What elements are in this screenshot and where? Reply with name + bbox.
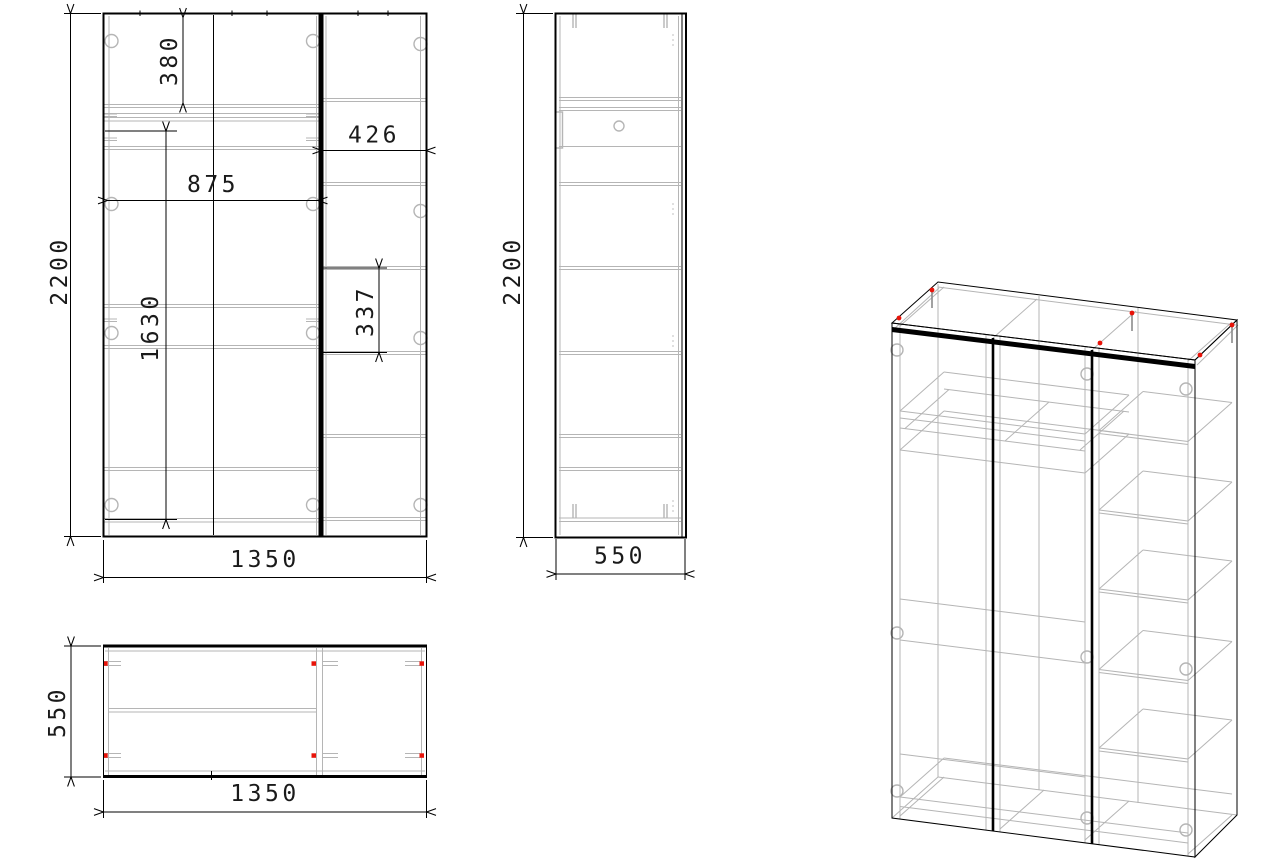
plan-carcass — [103, 645, 427, 780]
side-rail-hole — [614, 121, 624, 131]
dim-front-shelf-spacing: 337 — [324, 268, 388, 353]
front-carcass — [104, 11, 428, 538]
plan-connectors — [103, 661, 424, 758]
fitting-brackets — [105, 114, 319, 322]
connector-mark — [312, 753, 317, 758]
dim-label-front-top-compartment: 380 — [157, 34, 183, 86]
dim-label-front-left-width: 875 — [187, 172, 239, 198]
dim-front-right-width: 426 — [322, 123, 426, 151]
connector-mark — [420, 753, 425, 758]
iso-internal-gray — [891, 284, 1238, 856]
dim-front-overall-width: 1350 — [104, 540, 427, 583]
connector-mark — [312, 661, 317, 666]
side-outline — [556, 14, 687, 538]
connector-mark — [1098, 341, 1103, 346]
connector-mark — [897, 316, 902, 321]
dim-side-height: 2200 — [500, 14, 553, 538]
dim-label-front-right-width: 426 — [348, 123, 400, 149]
dim-label-front-hanging-height: 1630 — [138, 292, 164, 361]
dim-front-overall-height: 2200 — [47, 14, 101, 537]
dim-label-plan-depth: 550 — [45, 686, 71, 738]
technical-drawing-canvas: 2200 380 875 1630 426 337 — [0, 0, 1273, 862]
iso-right-shelves — [1099, 392, 1232, 763]
side-shelf-lines — [559, 98, 681, 522]
plan-view: 550 1350 — [45, 645, 427, 818]
connector-mark — [930, 288, 935, 293]
iso-top-band — [892, 330, 1195, 367]
dim-label-side-depth: 550 — [594, 544, 646, 570]
side-carcass — [556, 14, 687, 538]
dim-front-top-compartment: 380 — [157, 18, 183, 104]
connector-mark — [1230, 323, 1235, 328]
dim-label-plan-width: 1350 — [230, 781, 299, 807]
iso-view — [891, 282, 1238, 857]
iso-outline — [892, 282, 1237, 857]
dim-front-left-width: 875 — [108, 172, 319, 201]
connector-mark — [420, 661, 425, 666]
dim-side-depth: 550 — [556, 539, 685, 580]
dim-plan-depth: 550 — [45, 646, 101, 777]
dim-label-front-height: 2200 — [47, 236, 73, 305]
front-outline — [104, 14, 427, 537]
dim-label-front-width: 1350 — [230, 547, 299, 573]
front-view: 2200 380 875 1630 426 337 — [47, 11, 427, 584]
connector-mark — [1130, 311, 1135, 316]
side-view: 2200 550 — [500, 14, 686, 581]
side-rail-bracket — [556, 112, 563, 148]
dim-label-side-height: 2200 — [500, 236, 526, 305]
dim-label-front-shelf-spacing: 337 — [353, 285, 379, 337]
connector-mark — [1198, 353, 1203, 358]
front-shelf-lines-left — [105, 105, 319, 523]
dim-plan-width: 1350 — [104, 780, 427, 818]
dim-front-hanging-height: 1630 — [105, 131, 177, 520]
